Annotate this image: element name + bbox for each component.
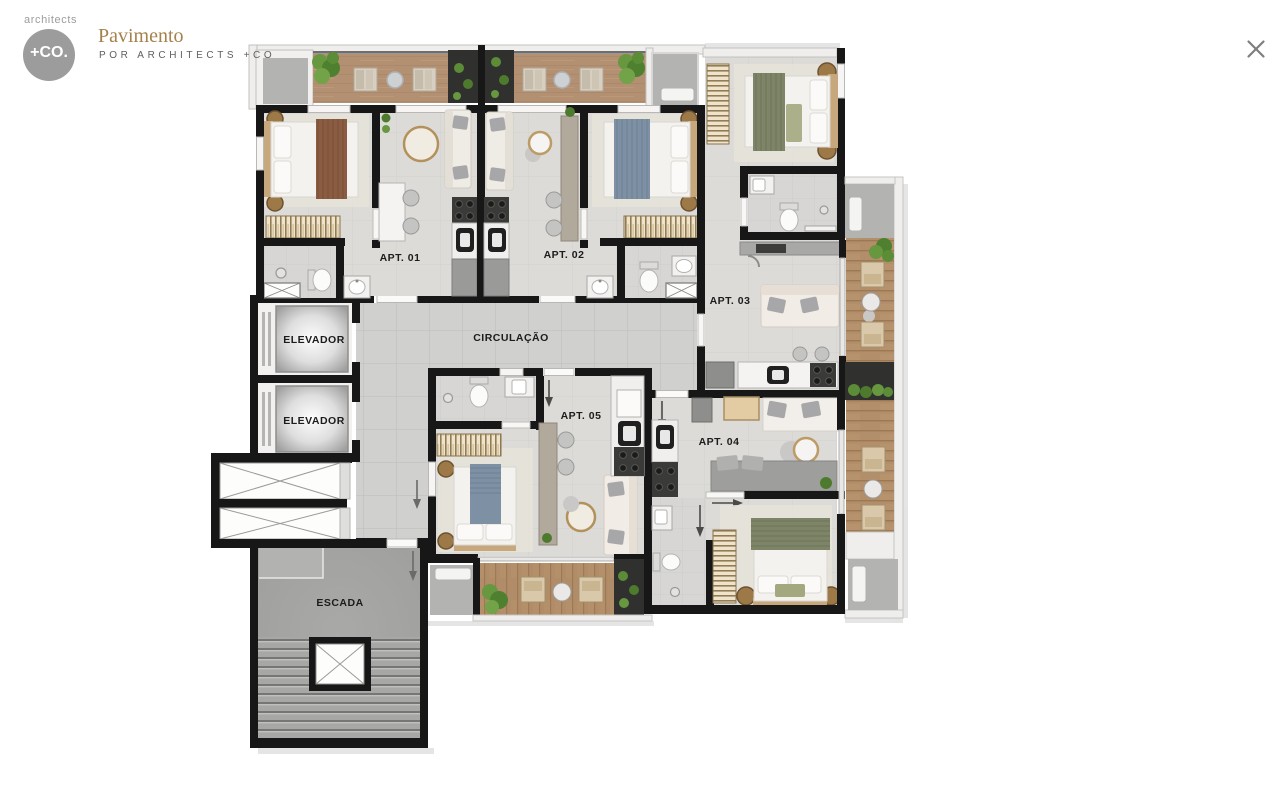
svg-text:ESCADA: ESCADA — [316, 597, 363, 609]
svg-text:APT. 05: APT. 05 — [561, 410, 602, 422]
svg-text:APT. 04: APT. 04 — [699, 436, 740, 448]
svg-text:APT. 01: APT. 01 — [380, 252, 421, 264]
svg-text:CIRCULAÇÃO: CIRCULAÇÃO — [473, 331, 549, 344]
svg-text:APT. 03: APT. 03 — [710, 295, 751, 307]
svg-text:ELEVADOR: ELEVADOR — [283, 334, 345, 346]
svg-text:APT. 02: APT. 02 — [544, 249, 585, 261]
svg-text:ELEVADOR: ELEVADOR — [283, 415, 345, 427]
